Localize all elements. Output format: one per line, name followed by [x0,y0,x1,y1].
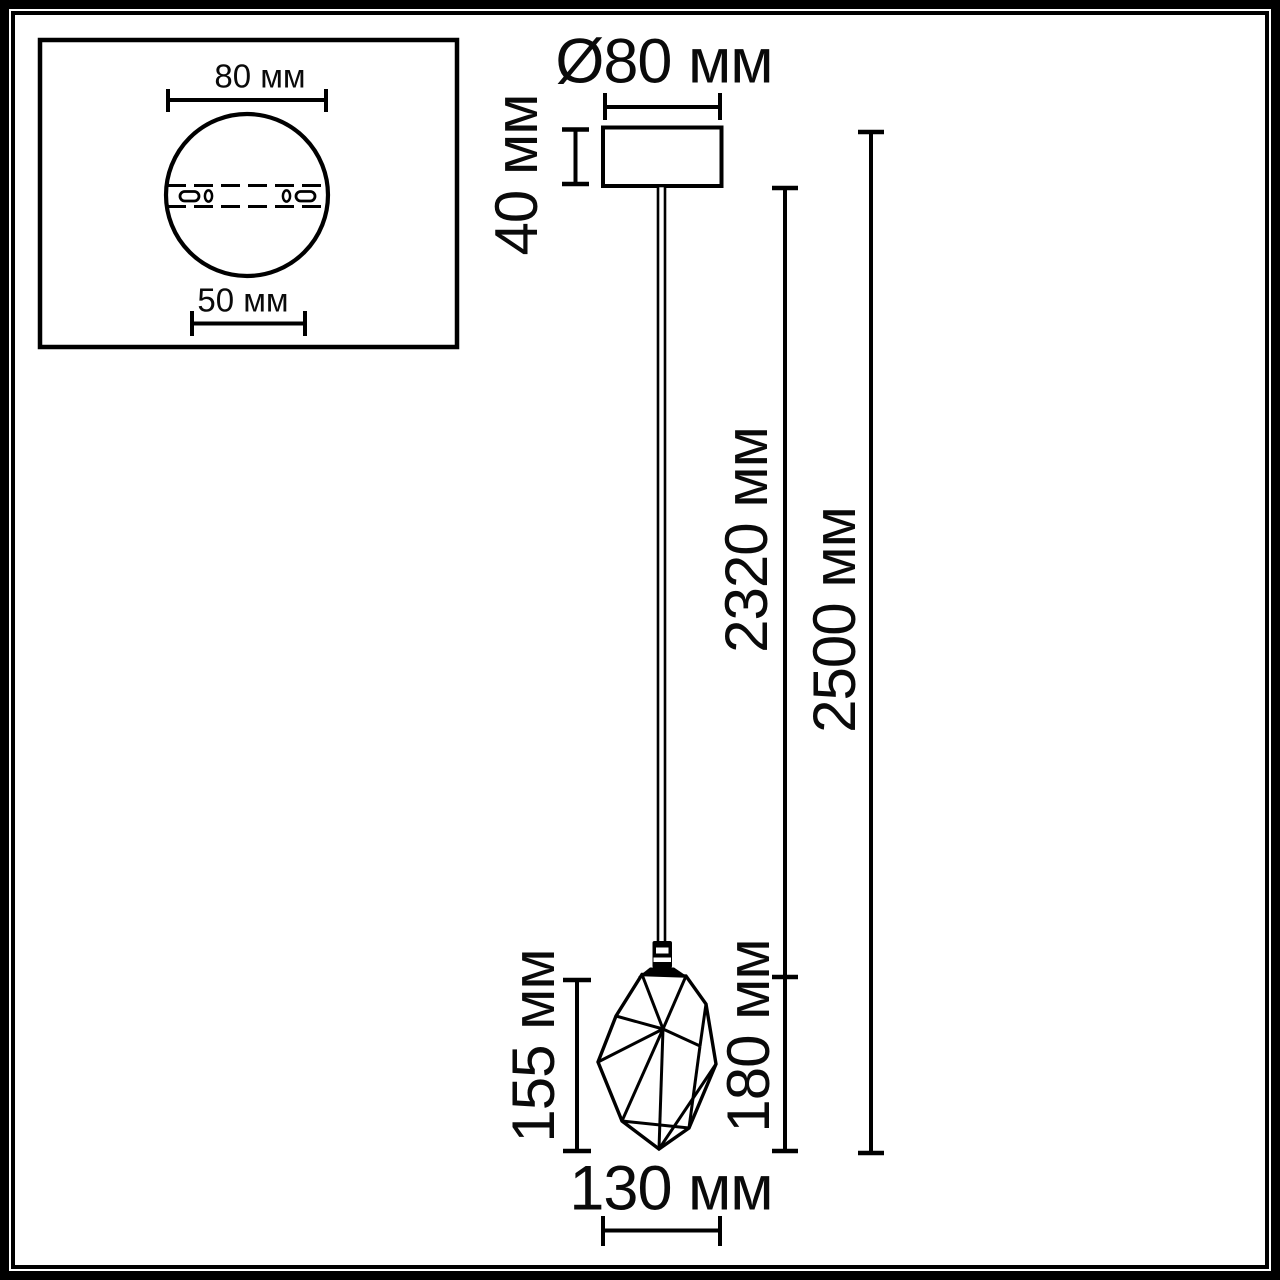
mount-hole-right [283,190,290,201]
ferrule-slit [656,948,669,954]
ferrule-slit [654,958,672,963]
dimension-drawing-pendant-lamp: 80 мм 50 мм Ø80 мм 40 мм 2320 мм 2500 мм… [0,0,1280,1280]
suspension-cord [658,186,665,943]
dim-label-cord-length: 2320 мм [717,427,777,653]
ceiling-canopy [603,128,722,187]
mount-slot-right [296,192,315,202]
dim-label-shade-height: 155 мм [504,949,564,1142]
dim-label-plate-width-top: 80 мм [214,60,305,93]
dim-label-plate-width-bottom: 50 мм [197,284,288,317]
dim-label-canopy-height: 40 мм [487,95,547,256]
drawing-linework [0,0,1280,1280]
dim-label-canopy-diameter: Ø80 мм [555,31,772,94]
cord-ferrule [653,941,673,968]
dim-label-overall-height: 2500 мм [805,507,865,733]
mount-slot-left [180,192,199,202]
dim-label-shade-width: 130 мм [569,1158,772,1221]
mount-hole-left [205,190,212,201]
mount-plate-circle [166,114,328,276]
dim-label-shade-drop: 180 мм [719,939,779,1132]
